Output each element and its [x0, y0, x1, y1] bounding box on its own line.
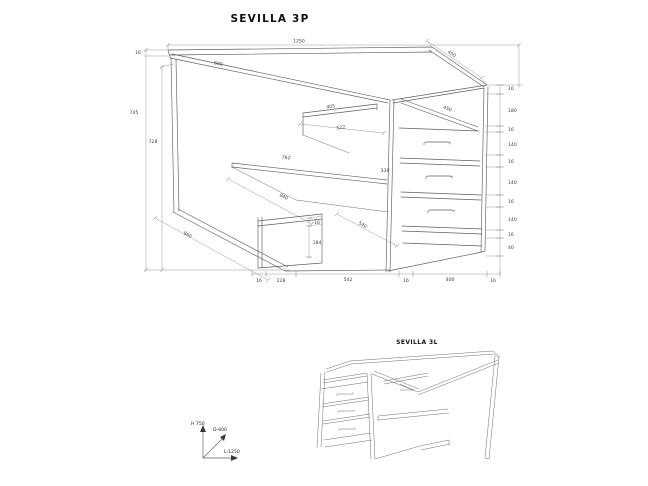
secondary-drawing: SEVILLA 3L [317, 339, 500, 459]
dim-bottom-542: 542 [344, 277, 353, 283]
dim-right-chain-16d: 16 [508, 199, 514, 205]
axis-depth-label: D-600 [213, 427, 227, 433]
dim-right-chain-16b: 16 [508, 127, 514, 133]
drawer-handle-icon [337, 393, 353, 396]
drawer-handle-icon [338, 410, 354, 413]
dim-cabinet-shelf-thickness: 16 [314, 220, 320, 226]
drawer-handle-icon [339, 428, 355, 431]
dim-corner-shelf-width: 405 [326, 103, 336, 110]
technical-drawing-page: SEVILLA 3P [0, 0, 648, 486]
dim-floor-depth: 860 [182, 230, 193, 240]
axis-indicator: H 750 D-600 L-1250 [191, 421, 240, 461]
dim-right-chain-16e: 16 [508, 232, 514, 238]
dim-bottom-228: 228 [277, 278, 286, 284]
corner-panel [386, 100, 482, 272]
left-side-panel [171, 57, 389, 271]
dim-total-height: 745 [130, 110, 139, 116]
drawer-unit [399, 99, 482, 246]
dim-drawer2-height: 140 [508, 180, 517, 186]
main-drawing: 1250 16 600 450 745 728 16 180 16 140 16… [130, 39, 523, 285]
dim-right-chain-180: 180 [508, 108, 517, 114]
dim-overall-length: 1250 [293, 39, 305, 45]
dim-bottom-400: 400 [446, 277, 455, 283]
dim-right-chain-16c: 16 [508, 159, 514, 165]
axis-height-label: H 750 [191, 421, 205, 427]
drawer-handle-icon [428, 210, 454, 213]
mid-shelf [232, 163, 388, 212]
dim-under-top-height: 728 [149, 139, 158, 145]
page-title: SEVILLA 3P [231, 13, 310, 25]
drawing-canvas: SEVILLA 3P [0, 0, 648, 486]
dim-drawer-unit-depth: 450 [442, 105, 452, 114]
axis-length-label: L-1250 [224, 449, 240, 455]
dim-top-thickness: 16 [135, 50, 141, 56]
dim-left-depth: 600 [213, 60, 223, 68]
dim-drawer1-height: 140 [508, 142, 517, 148]
desk-top-outline [168, 47, 487, 103]
axis-right-arrow-icon [231, 455, 238, 461]
dim-mid-shelf-width: 762 [281, 155, 290, 162]
dim-bottom-16b: 16 [403, 278, 409, 284]
dim-cabinet-opening-height: 184 [313, 240, 322, 246]
secondary-drawing-title: SEVILLA 3L [396, 339, 438, 346]
dim-mid-shelf-depth: 330 [381, 168, 390, 174]
dimension-labels: 1250 16 600 450 745 728 16 180 16 140 16… [130, 39, 517, 285]
right-side-panel [481, 87, 488, 252]
dim-bottom-16a: 16 [256, 278, 262, 284]
dim-right-chain-16a: 16 [508, 86, 514, 92]
dim-notch-width: 522 [336, 124, 346, 131]
dim-drawer3-height: 140 [508, 217, 517, 223]
drawer-handle-icon [424, 142, 450, 145]
dim-diagonal-840: 840 [278, 192, 289, 201]
secondary-desk-outline [317, 351, 500, 459]
dim-diagonal-540: 540 [357, 220, 368, 230]
drawer-handle-icon [426, 176, 452, 179]
dim-plinth-height: 40 [508, 245, 514, 251]
dim-bottom-16c: 16 [490, 278, 496, 284]
